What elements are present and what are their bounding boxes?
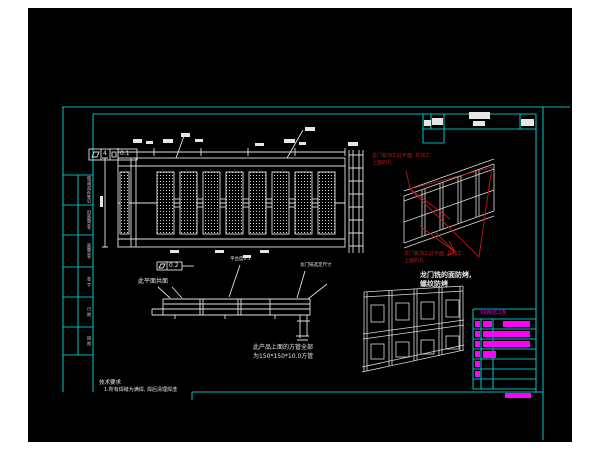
- tube-note-line1: 此产品上面的方管全部: [253, 345, 313, 352]
- magenta-text-bar: [505, 393, 531, 398]
- binding-strip-cell: 描 图: [64, 327, 92, 355]
- white-text-block: [424, 120, 431, 126]
- tech-req-title: 技术要求: [99, 380, 121, 386]
- binding-strip-cell: 日 期: [64, 297, 92, 327]
- magenta-text-bar: [475, 341, 480, 347]
- magenta-text-bar: [475, 321, 480, 327]
- face-note-line1: 龙门铣的面防烤,: [420, 271, 472, 279]
- tube-note-line2: 为150*150*10.0方管: [253, 354, 313, 361]
- binding-strip-cell: 签 字: [64, 267, 92, 297]
- white-text-block: [133, 139, 142, 143]
- white-text-block: [469, 112, 490, 119]
- red-note-top-line2: 上面的孔: [372, 161, 392, 167]
- screenshot-page: 龙门铣加工此平面, 并加工 上面的孔 龙门铣加工此平面, 并加工 上面的孔 龙门…: [0, 0, 600, 450]
- magenta-text-bar: [483, 331, 530, 337]
- coplanar-note: 此平面共面: [138, 279, 168, 286]
- red-note-bottom-line1: 龙门铣加工此平面, 并加工: [404, 252, 462, 258]
- binding-strip-cell: 借(通)用件登记: [64, 175, 92, 205]
- tech-req-line: 1.所有焊缝为满焊, 焊后清理焊渣: [104, 388, 177, 394]
- magenta-text-bar: [503, 321, 530, 327]
- gantry-note: 龙门铣选定尺寸: [300, 263, 332, 268]
- white-text-block: [100, 196, 103, 207]
- binding-strip-cell: 底图总号: [64, 235, 92, 267]
- white-text-block: [163, 139, 173, 143]
- face-note-line2: 螺纹防烤: [420, 280, 448, 288]
- magenta-text-bar: [483, 351, 496, 358]
- red-note-bottom-line2: 上面的孔: [404, 259, 424, 265]
- white-text-block: [181, 133, 190, 137]
- red-note-top-line1: 龙门铣加工此平面, 并加工: [372, 154, 430, 160]
- white-text-block: [243, 255, 251, 258]
- binding-strip-cell: 旧底图总号: [64, 205, 92, 235]
- fcf-top-count: 4: [103, 150, 107, 157]
- white-text-block: [195, 139, 203, 142]
- white-text-block: [473, 121, 485, 126]
- white-text-block: [146, 141, 153, 144]
- fcf-top-value: 0.1: [120, 150, 130, 157]
- magenta-text-bar: [483, 321, 492, 327]
- white-text-block: [170, 250, 179, 253]
- white-text-block: [305, 127, 315, 131]
- white-text-block: [255, 143, 264, 146]
- magenta-text-bar: [483, 341, 530, 347]
- fcf-mid-value: 0.2: [169, 262, 179, 269]
- magenta-text-bar: [475, 331, 480, 337]
- white-text-block: [260, 250, 269, 253]
- process-table-header: 下料制造工序: [479, 311, 506, 316]
- magenta-text-bar: [475, 371, 480, 377]
- white-text-block: [348, 142, 358, 146]
- white-text-block: [299, 142, 306, 145]
- magenta-text-bar: [475, 361, 480, 367]
- magenta-text-bar: [475, 351, 480, 357]
- white-text-block: [284, 139, 295, 143]
- white-text-block: [521, 119, 534, 126]
- white-text-block: [432, 118, 443, 125]
- cad-viewport: [28, 8, 572, 442]
- white-text-block: [215, 250, 224, 253]
